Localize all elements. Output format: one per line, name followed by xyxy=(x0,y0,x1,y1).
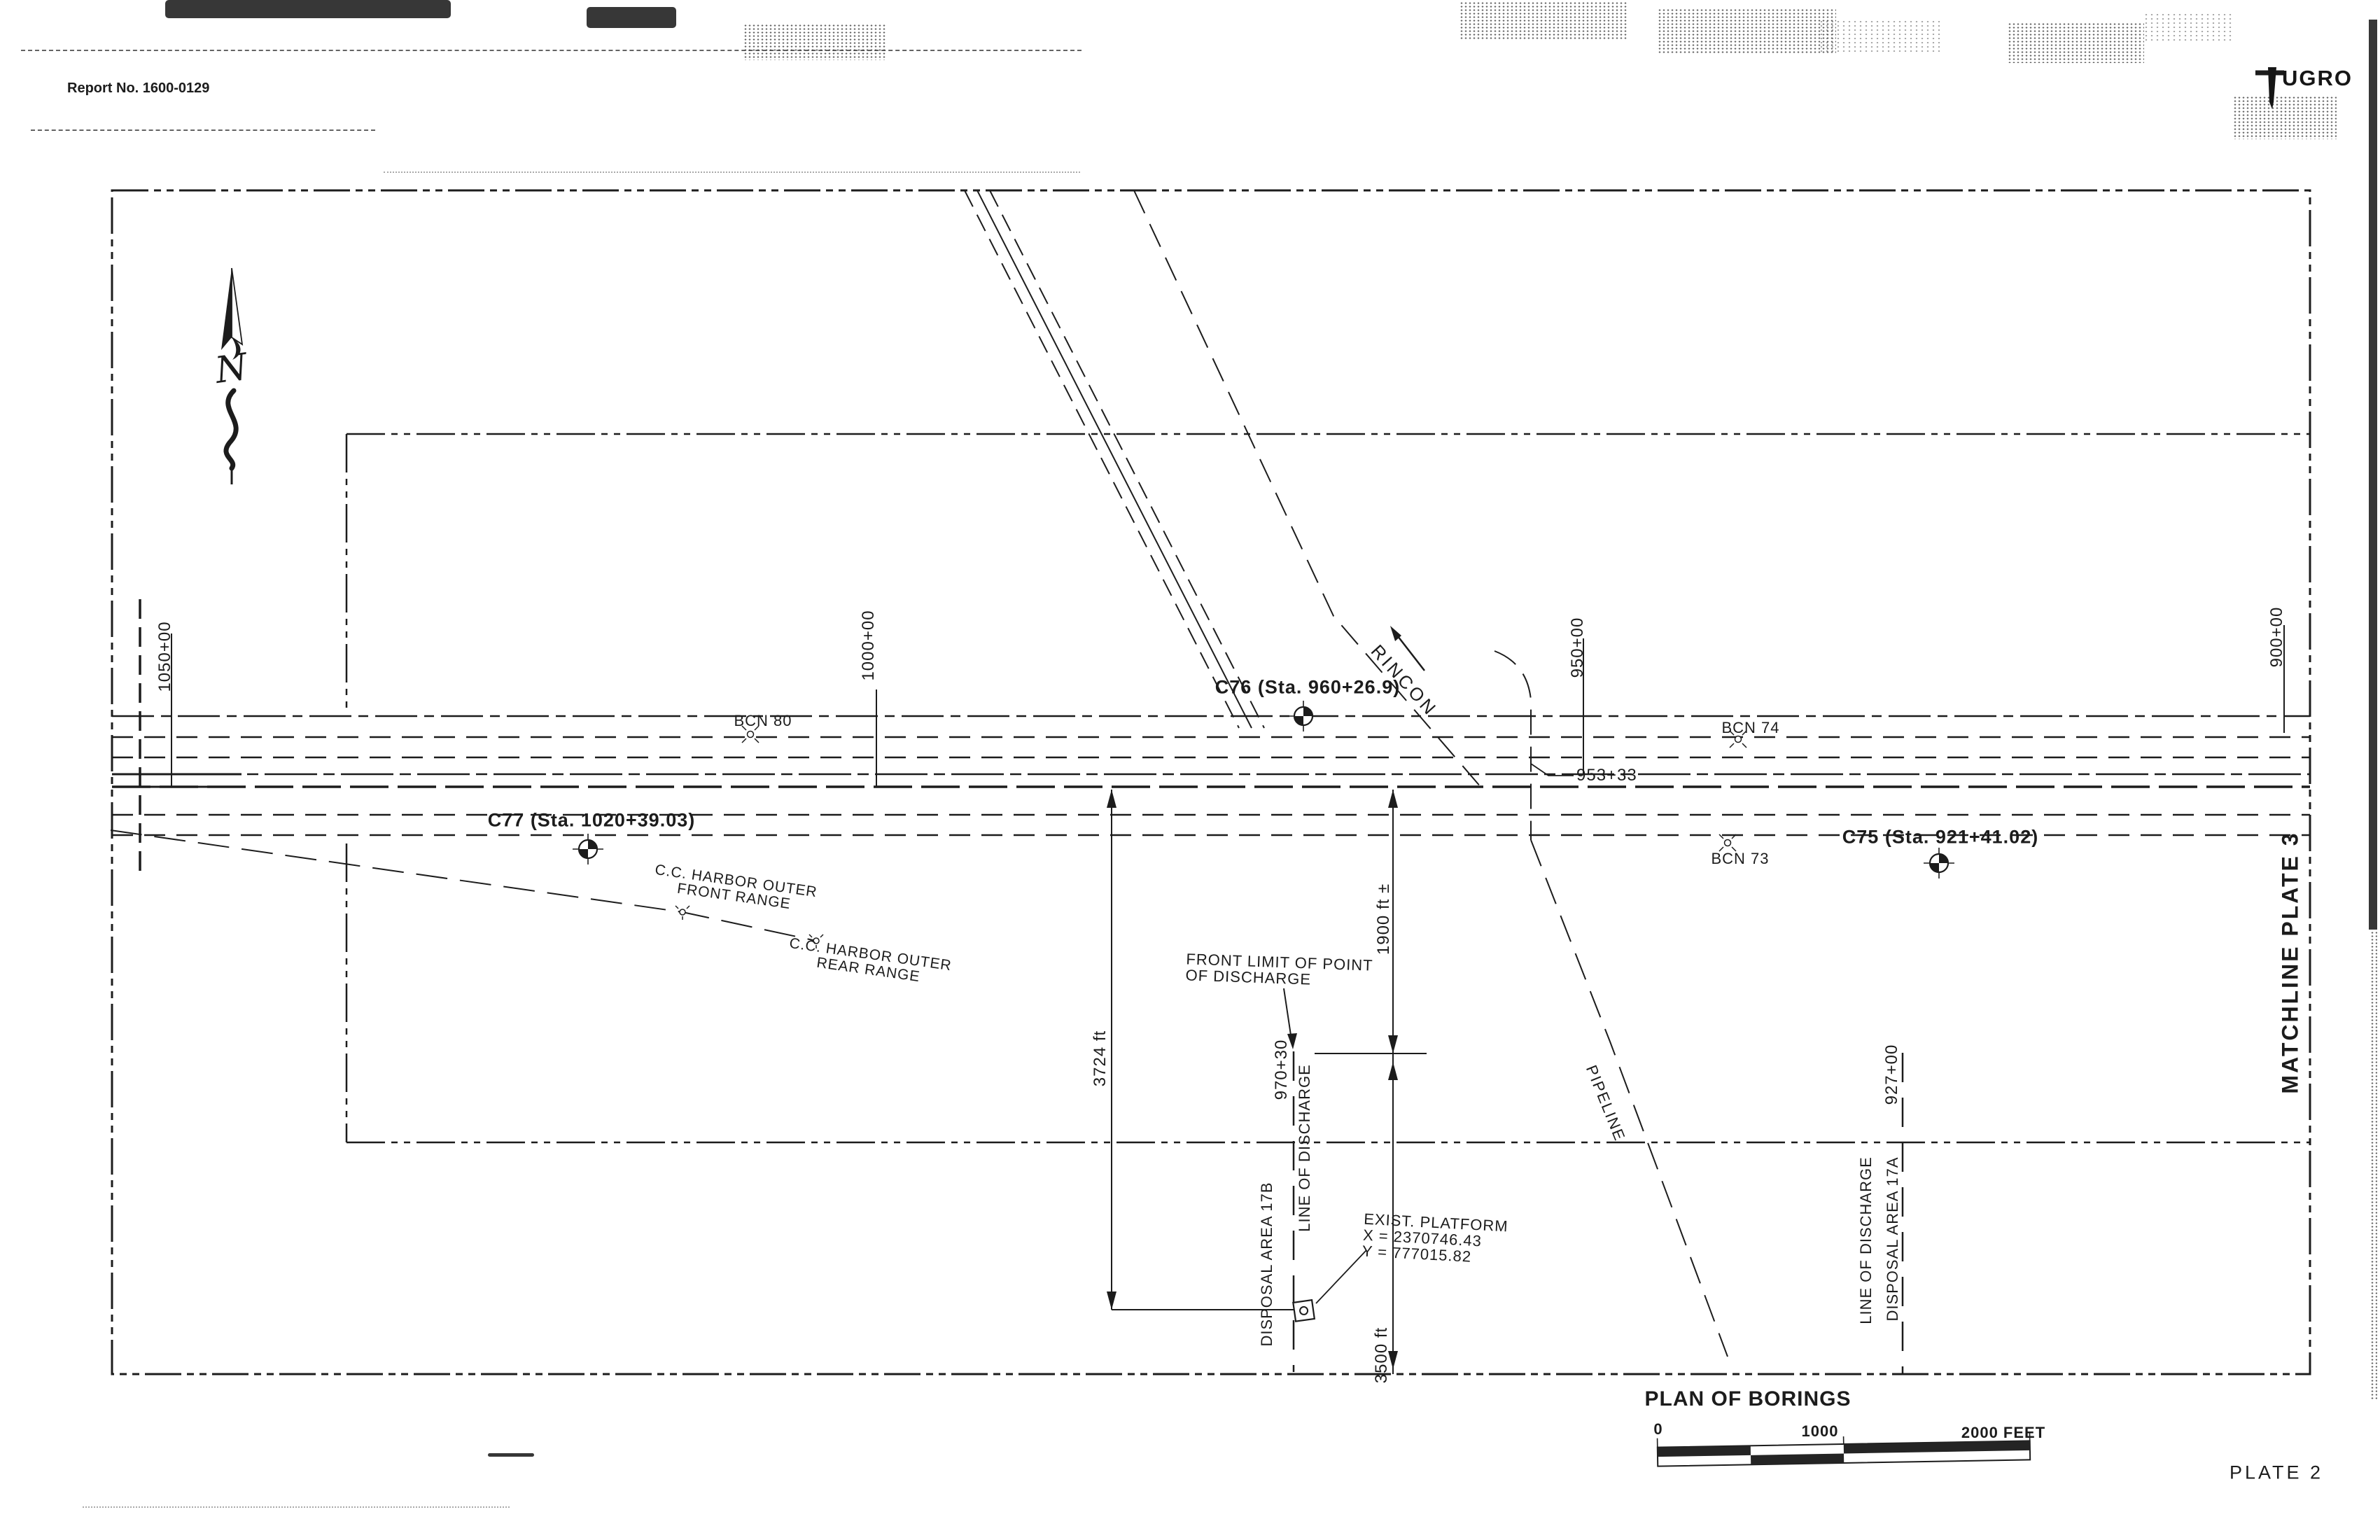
dim-1900-label: 1900 ft ± xyxy=(1374,883,1394,955)
boring-label-c75: C75 (Sta. 921+41.02) xyxy=(1842,827,2038,848)
front-limit-label: FRONT LIMIT OF POINT OF DISCHARGE xyxy=(1185,951,1373,989)
beacon-label-bcn74: BCN 74 xyxy=(1721,719,1779,737)
boring-symbol-c77 xyxy=(573,834,603,864)
discharge-17a-line-label: LINE OF DISCHARGE xyxy=(1857,1156,1875,1324)
beacon-label-bcn80: BCN 80 xyxy=(734,712,792,730)
boring-symbol-c75 xyxy=(1924,848,1954,878)
discharge-17b-area-label: DISPOSAL AREA 17B xyxy=(1258,1182,1276,1346)
scale-label-0: 0 xyxy=(1653,1420,1662,1438)
pipeline-line xyxy=(1531,840,1728,1357)
station-label-970-30: 970+30 xyxy=(1272,1039,1291,1100)
station-label-1050: 1050+00 xyxy=(155,621,175,692)
boring-label-c76: C76 (Sta. 960+26.9) xyxy=(1215,677,1400,699)
station-label-900: 900+00 xyxy=(2267,607,2287,668)
beacon-symbol-bcn73 xyxy=(1719,834,1736,851)
fugro-logo-text: UGRO xyxy=(2282,66,2353,91)
station-label-927: 927+00 xyxy=(1882,1044,1902,1105)
plate-number: PLATE 2 xyxy=(2229,1462,2323,1484)
platform-leader xyxy=(1316,1250,1366,1303)
station-label-1000: 1000+00 xyxy=(859,610,878,680)
boring-symbol-c76 xyxy=(1288,701,1319,731)
plan-title: PLAN OF BORINGS xyxy=(1644,1387,1851,1411)
rincon-channel-lines xyxy=(965,190,1264,728)
platform-symbol xyxy=(1293,1300,1314,1321)
station-label-953-33: 953+33 xyxy=(1576,766,1637,785)
scale-label-2000: 2000 FEET xyxy=(1961,1424,2045,1442)
rincon-bend-line xyxy=(1494,651,1531,840)
north-label: N xyxy=(213,346,251,392)
discharge-17a-area-label: DISPOSAL AREA 17A xyxy=(1884,1156,1902,1321)
beacon-label-bcn73: BCN 73 xyxy=(1711,850,1769,868)
channel-lines xyxy=(112,716,2310,835)
outer-border xyxy=(112,190,2310,1374)
dim-3500-label: 3500 ft xyxy=(1372,1327,1392,1383)
dim-3724-label: 3724 ft xyxy=(1091,1030,1110,1086)
station-label-950: 950+00 xyxy=(1568,617,1588,678)
drawing-sheet: Report No. 1600-0129 UGRO N 1050+00 1000… xyxy=(0,0,2380,1540)
report-number: Report No. 1600-0129 xyxy=(67,80,209,97)
platform-label: EXIST. PLATFORM X = 2370746.43 Y = 77701… xyxy=(1361,1211,1508,1267)
boring-label-c77: C77 (Sta. 1020+39.03) xyxy=(488,810,695,832)
inner-limit-lines xyxy=(346,434,2310,1142)
plan-linework xyxy=(0,0,2380,1540)
scale-label-1000: 1000 xyxy=(1802,1422,1839,1441)
discharge-17b-line-label: LINE OF DISCHARGE xyxy=(1296,1064,1314,1231)
matchline-label: MATCHLINE PLATE 3 xyxy=(2278,831,2304,1093)
fugro-nail-icon xyxy=(2255,67,2284,109)
